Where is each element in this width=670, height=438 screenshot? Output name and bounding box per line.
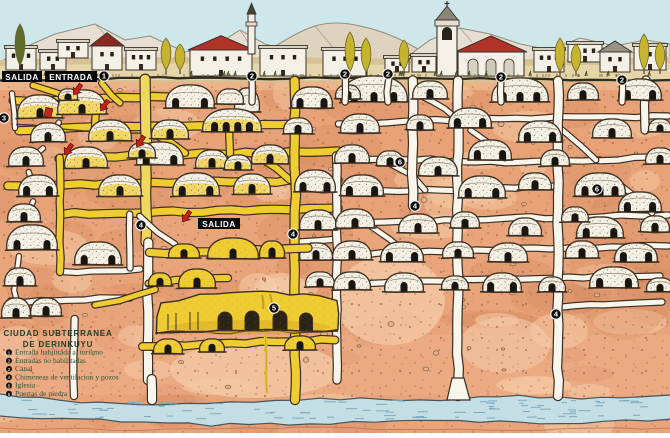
svg-text:2: 2 <box>499 73 503 82</box>
svg-text:2: 2 <box>386 70 390 79</box>
svg-text:3: 3 <box>2 114 6 123</box>
svg-text:2: 2 <box>620 76 624 85</box>
svg-text:1: 1 <box>102 72 106 81</box>
svg-text:2: 2 <box>250 72 254 81</box>
svg-text:SALIDA: SALIDA <box>202 220 235 229</box>
svg-text:SALIDA: SALIDA <box>5 73 38 82</box>
svg-text:CIUDAD SUBTERRANEA: CIUDAD SUBTERRANEA <box>3 329 112 338</box>
svg-text:ENTRADA: ENTRADA <box>49 73 93 82</box>
svg-text:2: 2 <box>343 70 347 79</box>
svg-text:Puertas de piedra: Puertas de piedra <box>15 389 68 398</box>
svg-text:6: 6 <box>595 185 599 194</box>
svg-text:5: 5 <box>272 304 276 313</box>
svg-text:6: 6 <box>398 158 402 167</box>
